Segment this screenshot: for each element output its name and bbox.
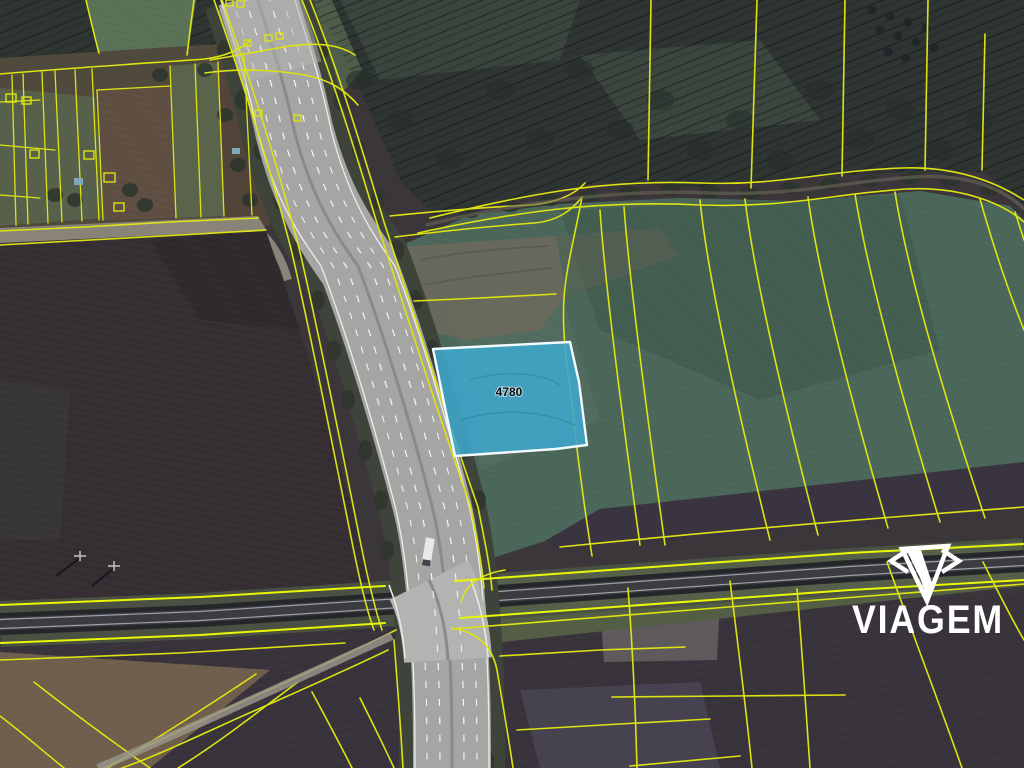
- highlighted-parcel-group: 4780: [433, 342, 587, 456]
- viagem-wordmark: VIAGEM: [852, 598, 1004, 642]
- cadastral-satellite-map: 4780 VIAGEM: [0, 0, 1024, 768]
- highlighted-parcel[interactable]: [433, 342, 587, 456]
- map-viewport[interactable]: 4780 VIAGEM: [0, 0, 1024, 768]
- parcel-number-label: 4780: [496, 385, 523, 399]
